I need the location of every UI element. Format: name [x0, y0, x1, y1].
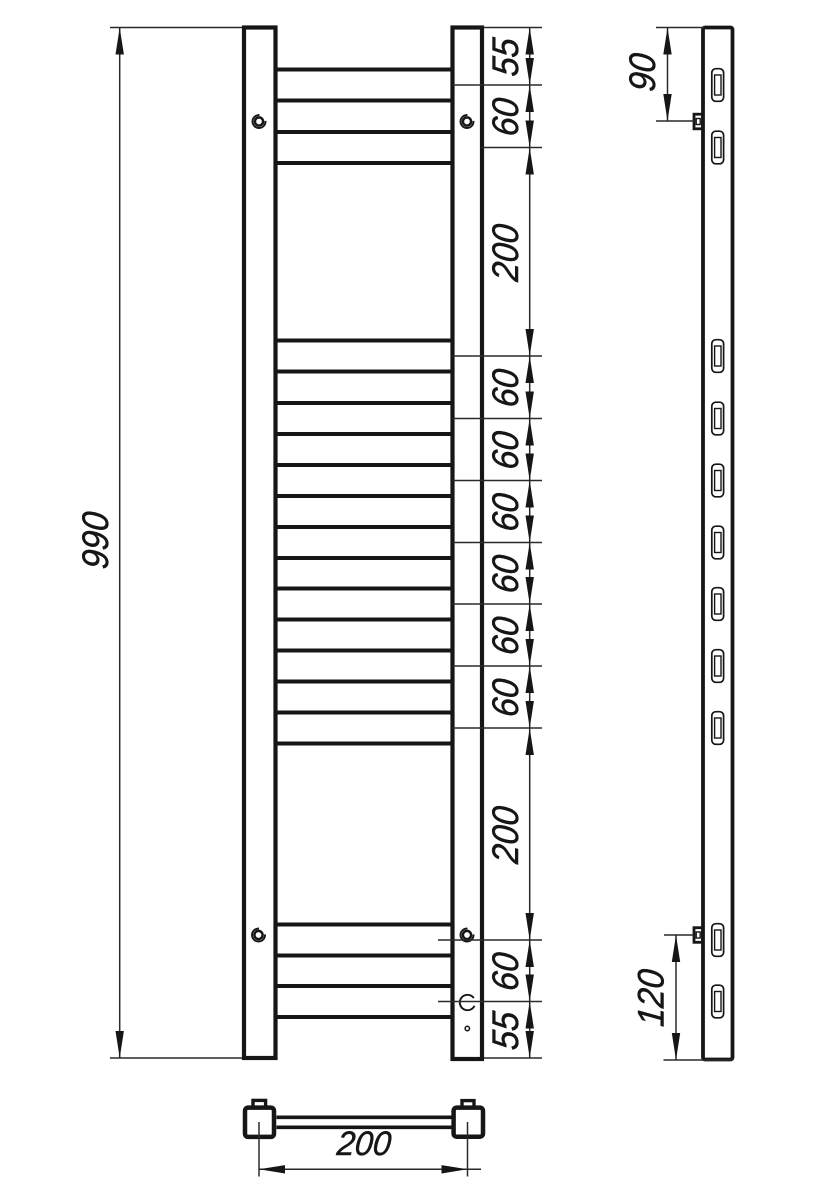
svg-text:60: 60 — [485, 553, 527, 595]
svg-text:60: 60 — [485, 96, 527, 138]
svg-text:55: 55 — [485, 1009, 527, 1051]
svg-text:200: 200 — [485, 222, 527, 284]
svg-text:90: 90 — [622, 51, 664, 93]
svg-text:60: 60 — [485, 950, 527, 992]
svg-text:60: 60 — [485, 615, 527, 657]
svg-text:60: 60 — [485, 429, 527, 471]
svg-text:55: 55 — [485, 36, 527, 78]
svg-text:60: 60 — [485, 677, 527, 719]
svg-text:120: 120 — [630, 967, 672, 1028]
svg-text:200: 200 — [485, 804, 527, 866]
svg-text:60: 60 — [485, 491, 527, 533]
svg-text:60: 60 — [485, 367, 527, 409]
svg-text:200: 200 — [334, 1125, 393, 1163]
svg-text:990: 990 — [75, 510, 117, 571]
